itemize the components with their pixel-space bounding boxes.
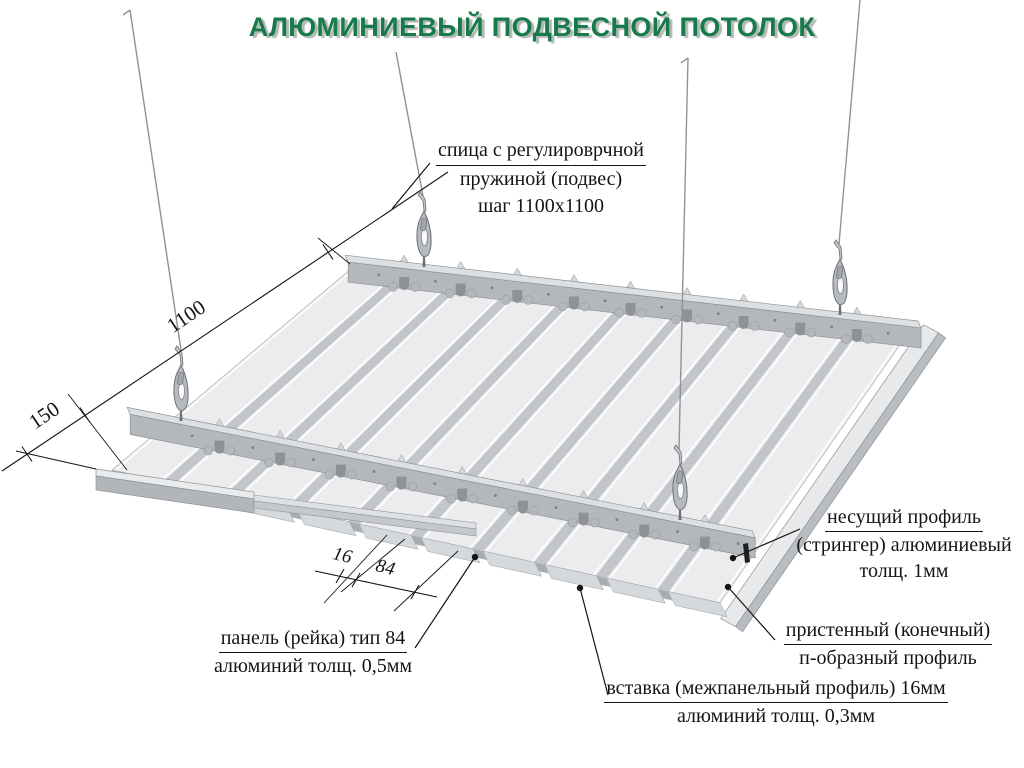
- stringer-slot: [682, 309, 692, 322]
- stringer-slot: [214, 441, 224, 454]
- stringer-tab: [226, 446, 235, 455]
- hanger-hole: [678, 482, 684, 499]
- stringer-tab: [265, 458, 274, 467]
- stringer-rivet-hole: [433, 482, 436, 485]
- stringer-slot: [518, 501, 528, 514]
- stringer-slot: [456, 283, 466, 296]
- stringer-rivet-hole: [494, 494, 497, 497]
- stringer-rivet-hole: [251, 446, 254, 449]
- hanger-hole: [179, 383, 185, 400]
- stringer-tab: [590, 518, 599, 527]
- stringer-slot: [700, 537, 710, 550]
- hanger-hole: [838, 277, 844, 294]
- stringer-rivet-hole: [676, 530, 679, 533]
- extension-line: [318, 238, 350, 264]
- annotation-insert-line2: алюминий толщ. 0,3мм: [590, 703, 962, 729]
- stringer-slot: [512, 290, 522, 303]
- stringer-rivet-hole: [604, 299, 607, 302]
- stringer-tab: [672, 315, 681, 324]
- stringer-tab: [445, 289, 454, 298]
- annotation-stringer-line3: толщ. 1мм: [788, 558, 1020, 584]
- stringer-tab: [502, 295, 511, 304]
- suspension-wire: [130, 10, 181, 350]
- spring-hanger: [833, 240, 847, 315]
- stringer-rivet-hole: [717, 312, 720, 315]
- wire-hook: [681, 58, 688, 63]
- annotation-stringer: несущий профиль (стрингер) алюминиевый т…: [788, 504, 1020, 584]
- stringer-rivet-hole: [555, 506, 558, 509]
- stringer-tab: [568, 518, 577, 527]
- stringer-tab: [507, 506, 516, 515]
- extension-line: [68, 394, 127, 470]
- hanger-hook: [834, 240, 842, 259]
- stringer-rivet-hole: [660, 306, 663, 309]
- stringer-rivet-hole: [547, 293, 550, 296]
- stringer-tab: [408, 482, 417, 491]
- hanger-pin: [423, 257, 426, 267]
- stringer-tab: [615, 308, 624, 317]
- page-title: АЛЮМИНИЕВЫЙ ПОДВЕСНОЙ ПОТОЛОК: [20, 12, 1024, 43]
- stringer-slot: [336, 465, 346, 478]
- stringer-tab: [694, 315, 703, 324]
- stringer-slot: [639, 525, 649, 538]
- stringer-tab: [204, 446, 213, 455]
- stringer-rivet-hole: [737, 542, 740, 545]
- hanger-hole: [422, 229, 428, 246]
- annotation-panel: панель (рейка) тип 84 алюминий толщ. 0,5…: [198, 625, 428, 679]
- leader-dot: [472, 554, 478, 560]
- stringer-slot: [399, 277, 409, 290]
- leader-dot: [730, 555, 736, 561]
- stringer-rivet-hole: [774, 319, 777, 322]
- annotation-hanger: спица с регулироврчной пружиной (подвес)…: [412, 137, 670, 220]
- dim-label-150: 150: [24, 396, 64, 434]
- stringer-tab: [325, 470, 334, 479]
- annotation-hanger-line2: пружиной (подвес): [412, 166, 670, 193]
- dim-label-84: 84: [374, 555, 398, 580]
- stringer-slot: [275, 453, 285, 466]
- stringer-tab: [629, 530, 638, 539]
- stringer-rivet-hole: [887, 332, 890, 335]
- stringer-rivet-hole: [615, 518, 618, 521]
- annotation-wall-profile-line1: пристенный (конечный): [784, 617, 992, 645]
- annotation-panel-line1: панель (рейка) тип 84: [219, 625, 408, 653]
- stringer-tab: [389, 282, 398, 291]
- stringer-rivet-hole: [491, 286, 494, 289]
- stringer-tab: [347, 470, 356, 479]
- annotation-stringer-line1: несущий профиль: [825, 504, 983, 532]
- stringer-slot: [852, 329, 862, 342]
- stringer-tab: [411, 282, 420, 291]
- stringer-tab: [863, 334, 872, 343]
- stringer-tab: [651, 530, 660, 539]
- stringer-tab: [447, 494, 456, 503]
- hanger-pin: [679, 510, 682, 520]
- stringer-slot: [457, 489, 467, 502]
- stringer-tab: [524, 295, 533, 304]
- annotation-wall-profile-line2: п-образный профиль: [772, 645, 1004, 671]
- annotation-stringer-line2: (стрингер) алюминиевый: [788, 532, 1020, 558]
- extension-line: [16, 451, 96, 469]
- dim-label-1100: 1100: [162, 295, 210, 338]
- extension-line: [394, 551, 458, 611]
- hanger-pin: [839, 305, 842, 315]
- annotation-insert: вставка (межпанельный профиль) 16мм алюм…: [590, 675, 962, 729]
- stringer-slot: [579, 513, 589, 526]
- stringer-rivet-hole: [830, 325, 833, 328]
- stringer-slot: [625, 303, 635, 316]
- page: { "title": "АЛЮМИНИЕВЫЙ ПОДВЕСНОЙ ПОТОЛО…: [0, 0, 1024, 768]
- stringer-tab: [637, 308, 646, 317]
- stringer-tab: [529, 506, 538, 515]
- hanger-hook: [175, 346, 183, 365]
- stringer-tab: [469, 494, 478, 503]
- annotation-hanger-line3: шаг 1100x1100: [412, 193, 670, 220]
- hanger-pin: [180, 411, 183, 421]
- stringer-tab: [728, 321, 737, 330]
- stringer-rivet-hole: [373, 470, 376, 473]
- stringer-rivet-hole: [312, 458, 315, 461]
- leader-dot: [725, 584, 731, 590]
- stringer-tab: [467, 289, 476, 298]
- stringer-slot: [795, 322, 805, 335]
- annotation-wall-profile: пристенный (конечный) п-образный профиль: [772, 617, 1004, 671]
- annotation-hanger-line1: спица с регулироврчной: [436, 137, 646, 166]
- dim-tick: [323, 245, 333, 260]
- stringer-tab: [287, 458, 296, 467]
- stringer-tab: [689, 542, 698, 551]
- stringer-tab: [785, 328, 794, 337]
- stringer-tab: [386, 482, 395, 491]
- annotation-panel-line2: алюминий толщ. 0,5мм: [198, 653, 428, 679]
- stringer-rivet-hole: [191, 434, 194, 437]
- stringer-tab: [841, 334, 850, 343]
- stringer-rivet-hole: [377, 273, 380, 276]
- leader-dot: [577, 585, 583, 591]
- stringer-slot: [569, 296, 579, 309]
- stringer-tab: [580, 302, 589, 311]
- annotation-insert-line1: вставка (межпанельный профиль) 16мм: [604, 675, 947, 703]
- stringer-slot: [396, 477, 406, 490]
- stringer-slot: [739, 316, 749, 329]
- stringer-tab: [558, 302, 567, 311]
- stringer-rivet-hole: [434, 280, 437, 283]
- stringer-tab: [750, 321, 759, 330]
- stringer-tab: [807, 328, 816, 337]
- dim-label-16: 16: [331, 543, 355, 568]
- ceiling-drawing: [2, 0, 946, 695]
- stringer-tab: [711, 542, 720, 551]
